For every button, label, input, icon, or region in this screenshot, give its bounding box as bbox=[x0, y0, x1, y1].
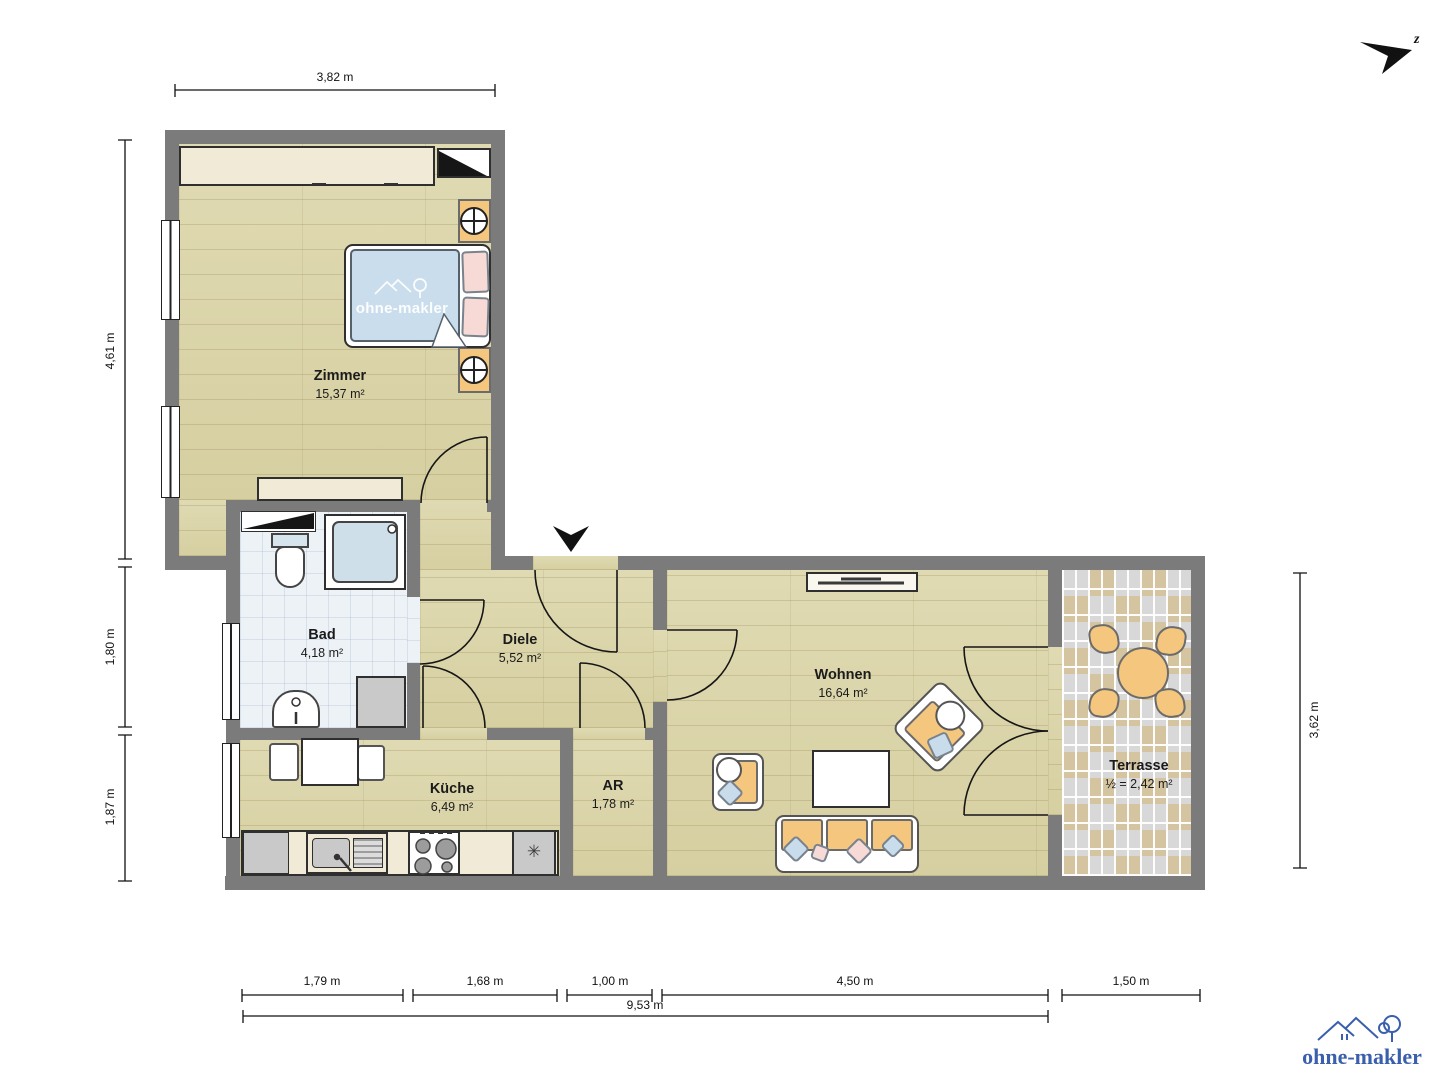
bad-shaft bbox=[241, 511, 316, 532]
window bbox=[222, 623, 240, 720]
room-name: Bad bbox=[242, 626, 402, 645]
dim-left-1: 4,61 m bbox=[103, 315, 117, 387]
room-area: 4,18 m² bbox=[242, 645, 402, 661]
wall bbox=[165, 130, 179, 570]
bed-pillow bbox=[461, 297, 489, 338]
toilet-bowl bbox=[275, 546, 305, 588]
ar-door-threshold bbox=[573, 728, 645, 740]
stove bbox=[408, 831, 460, 875]
watermark: ohne-makler bbox=[342, 276, 462, 317]
sink-basin bbox=[312, 838, 350, 868]
floor-plan: ✳ bbox=[0, 0, 1440, 1080]
wall bbox=[1048, 815, 1062, 876]
logo-house-tree-icon bbox=[1312, 1010, 1412, 1046]
kitchen-chair bbox=[357, 745, 385, 781]
watermark-text: ohne-makler bbox=[342, 300, 462, 317]
room-label-kueche: Küche 6,49 m² bbox=[372, 780, 532, 815]
window bbox=[222, 743, 240, 838]
room-area: 16,64 m² bbox=[763, 685, 923, 701]
dim-bottom-5: 1,50 m bbox=[1095, 974, 1167, 988]
room-label-bad: Bad 4,18 m² bbox=[242, 626, 402, 661]
dim-bottom-2: 1,68 m bbox=[449, 974, 521, 988]
room-area: 15,37 m² bbox=[260, 386, 420, 402]
dim-top: 3,82 m bbox=[299, 70, 371, 84]
room-label-zimmer: Zimmer 15,37 m² bbox=[260, 367, 420, 402]
room-name: AR bbox=[533, 777, 693, 796]
room-label-wohnen: Wohnen 16,64 m² bbox=[763, 666, 923, 701]
window bbox=[161, 220, 180, 320]
kitchen-cabinet bbox=[243, 832, 289, 874]
wohnen-door-threshold bbox=[653, 630, 667, 702]
north-label: z bbox=[1414, 32, 1419, 48]
wardrobe bbox=[179, 146, 435, 186]
window bbox=[161, 406, 180, 498]
room-area: ½ = 2,42 m² bbox=[1059, 776, 1219, 792]
diele-vestibule-floor bbox=[420, 500, 491, 570]
room-name: Küche bbox=[372, 780, 532, 799]
dim-left-2: 1,80 m bbox=[103, 611, 117, 683]
kueche-door-threshold bbox=[420, 728, 487, 740]
logo-text: ohne-makler bbox=[1284, 1044, 1440, 1070]
room-label-ar: AR 1,78 m² bbox=[533, 777, 693, 812]
washbasin bbox=[272, 690, 320, 728]
room-name: Wohnen bbox=[763, 666, 923, 685]
corner-shaft bbox=[437, 148, 491, 178]
dim-left-3: 1,87 m bbox=[103, 771, 117, 843]
sideboard bbox=[257, 477, 403, 501]
tv-board bbox=[806, 572, 918, 592]
snowflake-icon: ✳ bbox=[522, 842, 546, 862]
wall bbox=[653, 570, 667, 630]
dim-total: 9,53 m bbox=[609, 998, 681, 1012]
room-name: Terrasse bbox=[1059, 757, 1219, 776]
watermark-house-tree-icon bbox=[373, 276, 431, 300]
terrasse-floor bbox=[1062, 570, 1191, 876]
dim-bottom-1: 1,79 m bbox=[286, 974, 358, 988]
sink-drainboard bbox=[353, 838, 383, 868]
wall bbox=[225, 876, 1205, 890]
bad-door-threshold bbox=[407, 597, 420, 663]
nightstand bbox=[458, 347, 491, 393]
wall bbox=[1048, 570, 1062, 647]
wall bbox=[407, 663, 420, 728]
nightstand bbox=[458, 199, 491, 243]
dim-bottom-4: 4,50 m bbox=[819, 974, 891, 988]
room-name: Diele bbox=[440, 631, 600, 650]
wall bbox=[618, 556, 1205, 570]
entrance-arrow-icon bbox=[553, 526, 589, 552]
room-area: 1,78 m² bbox=[533, 796, 693, 812]
ohne-makler-logo: ohne-makler bbox=[1284, 1010, 1440, 1070]
kitchen-table bbox=[301, 738, 359, 786]
room-area: 6,49 m² bbox=[372, 799, 532, 815]
room-label-diele: Diele 5,52 m² bbox=[440, 631, 600, 666]
dim-bottom-3: 1,00 m bbox=[574, 974, 646, 988]
bed-pillow bbox=[461, 251, 489, 294]
zimmer-floor-nook bbox=[179, 500, 226, 556]
wall bbox=[487, 728, 573, 740]
entrance-threshold bbox=[533, 556, 618, 570]
wall bbox=[487, 500, 505, 512]
room-area: 5,52 m² bbox=[440, 650, 600, 666]
coffee-table bbox=[812, 750, 890, 808]
wall bbox=[1191, 556, 1205, 890]
room-name: Zimmer bbox=[260, 367, 420, 386]
wall bbox=[407, 512, 420, 597]
dim-right: 3,62 m bbox=[1307, 684, 1321, 756]
north-arrow-icon bbox=[1360, 42, 1412, 74]
shower-tray bbox=[332, 521, 398, 583]
wall bbox=[505, 556, 533, 570]
wall bbox=[165, 130, 505, 144]
room-label-terrasse: Terrasse ½ = 2,42 m² bbox=[1059, 757, 1219, 792]
kitchen-chair bbox=[269, 743, 299, 781]
washing-machine bbox=[356, 676, 406, 728]
